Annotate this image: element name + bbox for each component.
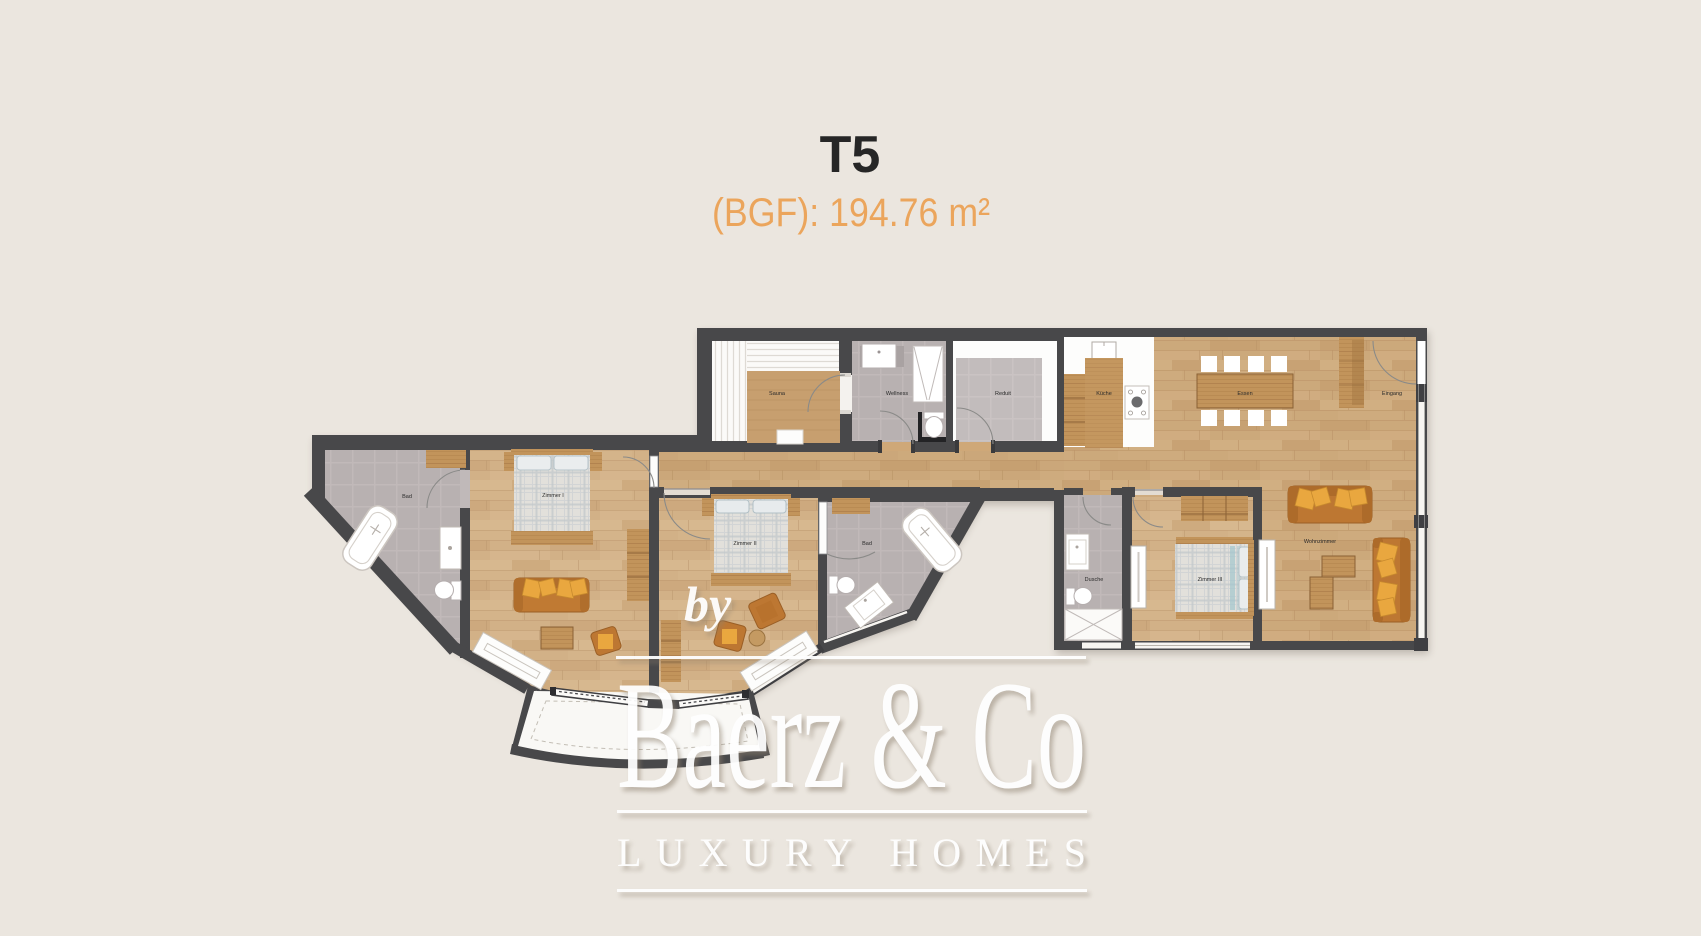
svg-text:Baerz & Co: Baerz & Co: [617, 649, 1086, 821]
svg-text:Zimmer I: Zimmer I: [542, 493, 564, 499]
svg-text:Zimmer II: Zimmer II: [733, 541, 757, 547]
svg-text:Zimmer III: Zimmer III: [1198, 577, 1223, 583]
svg-text:Wohnzimmer: Wohnzimmer: [1304, 539, 1336, 545]
svg-text:LUXURY HOMES: LUXURY HOMES: [617, 830, 1086, 875]
svg-text:Reduit: Reduit: [995, 391, 1011, 397]
svg-text:T5: T5: [820, 126, 881, 184]
svg-text:Bad: Bad: [862, 541, 872, 547]
svg-text:Wellness: Wellness: [886, 391, 908, 397]
svg-text:Eingang: Eingang: [1382, 391, 1402, 397]
svg-text:Sauna: Sauna: [769, 391, 786, 397]
svg-text:(BGF): 194.76 m²: (BGF): 194.76 m²: [712, 191, 990, 235]
svg-text:Dusche: Dusche: [1085, 577, 1104, 583]
svg-text:by: by: [684, 576, 732, 632]
svg-text:Bad: Bad: [402, 494, 412, 500]
svg-text:Essen: Essen: [1237, 391, 1252, 397]
svg-text:Küche: Küche: [1096, 391, 1112, 397]
